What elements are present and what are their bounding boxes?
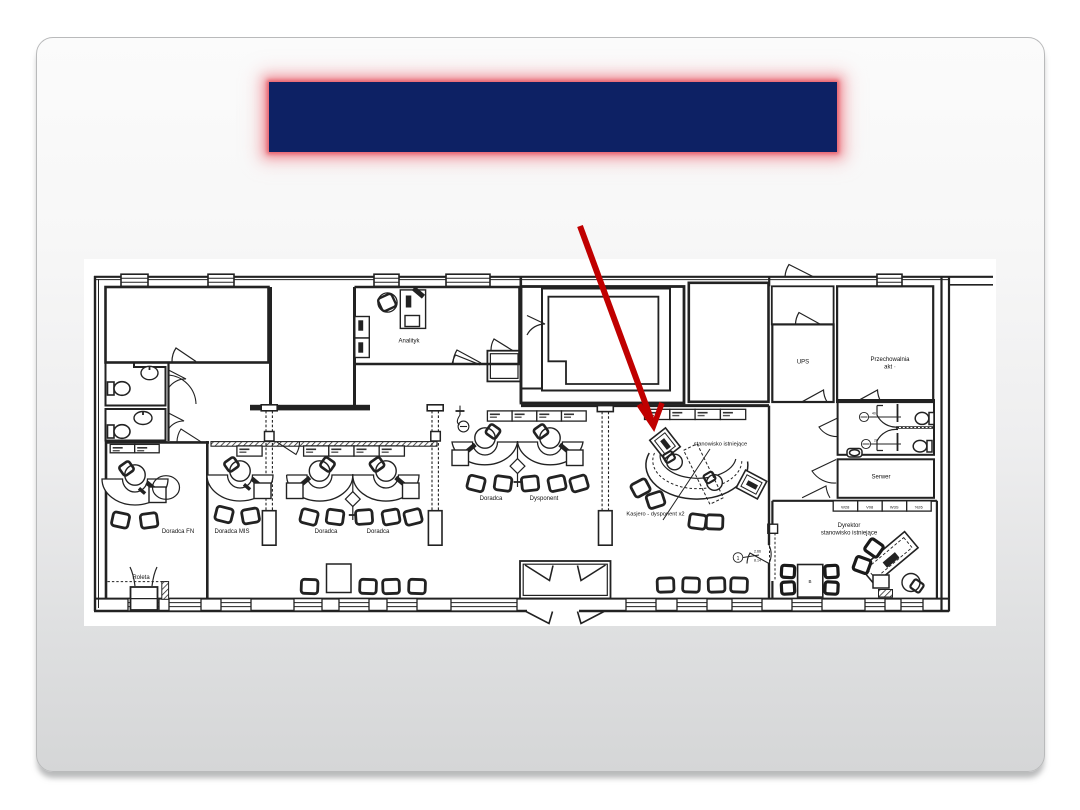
svg-text:Dysponent: Dysponent xyxy=(530,496,559,502)
svg-text:Roleta: Roleta xyxy=(132,575,150,581)
svg-text:Dyrektor: Dyrektor xyxy=(838,523,861,529)
svg-text:Przechowalnia: Przechowalnia xyxy=(870,357,910,363)
svg-text:Serwer: Serwer xyxy=(871,475,890,481)
svg-text:Doradca: Doradca xyxy=(315,529,338,535)
svg-text:20: 20 xyxy=(874,439,878,443)
svg-text:Doradca: Doradca xyxy=(480,496,503,502)
svg-text:W28: W28 xyxy=(841,504,850,509)
svg-text:UPS: UPS xyxy=(797,360,809,366)
svg-text:stanowisko istniejące: stanowisko istniejące xyxy=(694,442,747,448)
svg-text:Doradca MIS: Doradca MIS xyxy=(214,529,249,535)
svg-text:8.14: 8.14 xyxy=(754,559,761,563)
svg-text:40: 40 xyxy=(872,412,876,416)
svg-text:stanowisko istniejące: stanowisko istniejące xyxy=(821,531,878,537)
svg-text:akt ·: akt · xyxy=(884,365,896,371)
svg-text:1: 1 xyxy=(737,556,740,562)
svg-text:Analityk: Analityk xyxy=(398,339,420,345)
svg-text:%26: %26 xyxy=(915,504,924,509)
svg-text:Doradca: Doradca xyxy=(367,529,390,535)
svg-text:B: B xyxy=(808,579,811,584)
svg-text:W3S: W3S xyxy=(890,504,899,509)
svg-text:2.66: 2.66 xyxy=(754,550,761,554)
svg-text:Doradca FN: Doradca FN xyxy=(162,529,194,535)
svg-text:Kasjero - dysponent x2: Kasjero - dysponent x2 xyxy=(626,512,684,518)
svg-text:V08: V08 xyxy=(866,504,874,509)
